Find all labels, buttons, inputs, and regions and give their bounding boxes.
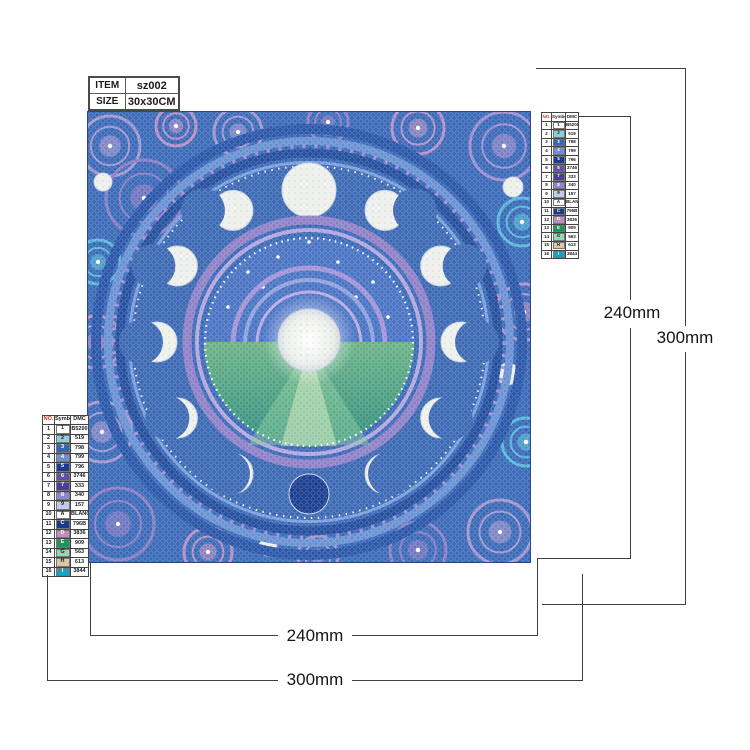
dim-right-inner-tick-top [578,116,631,117]
chart-symbol: 1 [552,121,566,130]
chart-symbol-chip: 5 [553,156,565,164]
chart-symbol-chip: 6 [56,473,70,482]
chart-dmc: 340 [71,491,89,501]
chart-symbol-chip: E [553,225,565,233]
chart-dmc: 3746 [566,164,579,173]
color-chart-left: NO. Symbol DMC 11B5200225193379844799557… [42,415,89,577]
chart-no: 3 [43,444,55,454]
dim-right-inner-line [630,328,631,558]
color-chart-row: 55796 [43,463,89,473]
chart-symbol-chip: 8 [56,492,70,501]
color-chart-row: 12D3836 [43,529,89,539]
chart-dmc: 796 [566,155,579,164]
chart-symbol: 8 [552,181,566,190]
chart-symbol: A [55,510,71,520]
chart-no: 2 [542,130,552,139]
chart-symbol-chip: I [553,251,565,259]
chart-symbol-chip: A [56,511,70,520]
chart-dmc: 796B [566,207,579,216]
chart-dmc: 796B [71,520,89,530]
color-chart-row: 88340 [43,491,89,501]
chart-dmc: 909 [566,224,579,233]
dim-right-outer-tick-top [536,68,686,69]
chart-no: 16 [542,250,552,259]
chart-header-dmc: DMC [566,113,579,122]
dim-right-inner-label: 240mm [602,304,662,322]
chart-symbol-chip: D [56,530,70,539]
chart-symbol: 6 [55,472,71,482]
chart-symbol: 5 [55,463,71,473]
chart-no: 7 [542,173,552,182]
chart-no: 9 [43,501,55,511]
chart-dmc: 613 [566,241,579,250]
chart-symbol: 5 [552,155,566,164]
chart-dmc: BLANC [566,198,579,207]
size-row: SIZE 30x30CM [89,94,179,111]
chart-header-row: NO. Symbol DMC [542,113,579,122]
chart-dmc: 563 [71,548,89,558]
chart-symbol: H [552,241,566,250]
chart-dmc: BLANC [71,510,89,520]
chart-no: 12 [43,529,55,539]
dim-right-inner-line [630,116,631,300]
chart-symbol: 9 [552,190,566,199]
chart-symbol: 9 [55,501,71,511]
chart-symbol-chip: 5 [56,463,70,472]
chart-symbol: 2 [552,130,566,139]
chart-no: 6 [542,164,552,173]
chart-no: 11 [43,520,55,530]
chart-no: 10 [542,198,552,207]
chart-dmc: 799 [566,147,579,156]
chart-no: 9 [542,190,552,199]
chart-dmc: 3836 [566,216,579,225]
color-chart-row: 99157 [542,190,579,199]
chart-dmc: 3844 [71,567,89,577]
color-chart-row: 10ABLANC [542,198,579,207]
chart-no: 13 [43,539,55,549]
chart-symbol-chip: 3 [56,444,70,453]
chart-symbol-chip: 4 [56,454,70,463]
chart-dmc: 519 [566,130,579,139]
chart-dmc: 3836 [71,529,89,539]
chart-header-row: NO. Symbol DMC [43,416,89,425]
color-chart-row: 22519 [542,130,579,139]
chart-symbol: A [552,198,566,207]
chart-symbol-chip: 1 [56,425,70,434]
chart-no: 5 [43,463,55,473]
color-chart-row: 14G563 [542,233,579,242]
color-chart-row: 11B5200 [542,121,579,130]
chart-symbol: G [55,548,71,558]
chart-no: 15 [43,558,55,568]
dim-right-outer-label: 300mm [655,329,715,347]
chart-symbol-chip: C [553,208,565,216]
chart-header-no: NO. [43,416,55,425]
chart-dmc: 157 [71,501,89,511]
chart-no: 14 [43,548,55,558]
chart-no: 15 [542,241,552,250]
dim-bottom-outer-tick-left [47,575,48,681]
chart-no: 5 [542,155,552,164]
chart-symbol-chip: 2 [553,130,565,138]
dim-bottom-outer-line [47,680,278,681]
item-row: ITEM sz002 [89,77,179,94]
chart-dmc: 157 [566,190,579,199]
dim-bottom-inner-line [352,635,537,636]
chart-symbol: C [55,520,71,530]
color-chart-row: 14G563 [43,548,89,558]
size-label: SIZE [89,94,125,111]
chart-header-dmc: DMC [71,416,89,425]
color-chart-right: NO. Symbol DMC 11B5200225193379844799557… [541,112,579,259]
dim-bottom-outer-label: 300mm [285,671,345,689]
chart-symbol-chip: G [553,233,565,241]
chart-symbol: 7 [55,482,71,492]
chart-no: 11 [542,207,552,216]
color-chart-row: 33798 [43,444,89,454]
chart-symbol: D [55,529,71,539]
chart-symbol-chip: D [553,216,565,224]
chart-no: 4 [542,147,552,156]
chart-symbol: 4 [552,147,566,156]
chart-no: 1 [542,121,552,130]
color-chart-row: 11B5200 [43,425,89,435]
chart-symbol-chip: I [56,568,70,577]
chart-dmc: 799 [71,453,89,463]
chart-no: 10 [43,510,55,520]
color-chart-row: 15H613 [542,241,579,250]
chart-symbol-chip: 6 [553,165,565,173]
dim-bottom-outer-line [352,680,582,681]
chart-symbol: 4 [55,453,71,463]
chart-symbol: I [552,250,566,259]
dim-bottom-inner-line [90,635,278,636]
chart-symbol: 7 [552,173,566,182]
chart-no: 13 [542,224,552,233]
chart-symbol: 6 [552,164,566,173]
chart-dmc: 333 [71,482,89,492]
chart-dmc: 563 [566,233,579,242]
chart-dmc: B5200 [71,425,89,435]
chart-symbol: D [552,216,566,225]
chart-symbol: E [552,224,566,233]
item-value: sz002 [125,77,179,94]
product-image: ITEM sz002 SIZE 30x30CM [0,0,750,750]
chart-no: 16 [43,567,55,577]
color-chart-row: 33798 [542,138,579,147]
size-value: 30x30CM [125,94,179,111]
chart-symbol-chip: 7 [553,173,565,181]
color-chart-row: 663746 [542,164,579,173]
color-chart-row: 77333 [542,173,579,182]
chart-symbol-chip: E [56,539,70,548]
chart-dmc: 333 [566,173,579,182]
dim-right-outer-line [685,352,686,604]
chart-no: 8 [542,181,552,190]
chart-symbol-chip: H [56,558,70,567]
chart-header-symbol: Symbol [55,416,71,425]
chart-symbol-chip: A [553,199,565,207]
chart-symbol-chip: 7 [56,482,70,491]
chart-symbol: E [55,539,71,549]
chart-no: 14 [542,233,552,242]
chart-dmc: 796 [71,463,89,473]
chart-symbol: 3 [55,444,71,454]
dim-bottom-outer-tick-right [582,574,583,681]
color-chart-row: 16I3844 [542,250,579,259]
chart-symbol-chip: G [56,549,70,558]
color-chart-row: 13E909 [43,539,89,549]
color-chart-row: 13E909 [542,224,579,233]
chart-no: 12 [542,216,552,225]
chart-symbol: 3 [552,138,566,147]
chart-symbol: 2 [55,434,71,444]
chart-dmc: 3746 [71,472,89,482]
chart-header-symbol: Symbol [552,113,566,122]
chart-symbol: 1 [55,425,71,435]
dim-bottom-inner-tick-left [90,562,91,636]
chart-symbol: C [552,207,566,216]
color-chart-row: 55796 [542,155,579,164]
chart-symbol: 8 [55,491,71,501]
chart-no: 6 [43,472,55,482]
chart-symbol-chip: 4 [553,147,565,155]
color-chart-row: 15H613 [43,558,89,568]
chart-symbol-chip: 2 [56,435,70,444]
dim-bottom-inner-tick-right [537,558,538,636]
chart-symbol-chip: C [56,520,70,529]
chart-dmc: 519 [71,434,89,444]
chart-symbol-chip: 1 [553,122,565,130]
chart-symbol-chip: 9 [56,501,70,510]
chart-symbol-chip: 3 [553,139,565,147]
color-chart-row: 88340 [542,181,579,190]
chart-symbol: I [55,567,71,577]
item-label: ITEM [89,77,125,94]
color-chart-row: 663746 [43,472,89,482]
diamond-painting-artwork [88,112,530,562]
chart-symbol-chip: 8 [553,182,565,190]
chart-dmc: 909 [71,539,89,549]
item-size-table: ITEM sz002 SIZE 30x30CM [88,76,180,111]
chart-no: 1 [43,425,55,435]
chart-dmc: 340 [566,181,579,190]
color-chart-row: 22519 [43,434,89,444]
dim-right-outer-tick-bottom [542,604,686,605]
dim-right-outer-line [685,68,686,326]
chart-no: 7 [43,482,55,492]
color-chart-row: 99157 [43,501,89,511]
color-chart-row: 11C796B [542,207,579,216]
color-chart-row: 12D3836 [542,216,579,225]
color-chart-row: 11C796B [43,520,89,530]
chart-dmc: 798 [71,444,89,454]
chart-symbol-chip: H [553,242,565,250]
chart-header-no: NO. [542,113,552,122]
diamond-dot-texture [88,112,530,562]
dim-bottom-inner-label: 240mm [285,627,345,645]
chart-no: 3 [542,138,552,147]
chart-dmc: 798 [566,138,579,147]
dim-right-inner-tick-bottom [538,558,631,559]
chart-symbol: G [552,233,566,242]
color-chart-row: 10ABLANC [43,510,89,520]
chart-symbol: H [55,558,71,568]
color-chart-row: 77333 [43,482,89,492]
chart-dmc: 3844 [566,250,579,259]
chart-no: 8 [43,491,55,501]
chart-dmc: B5200 [566,121,579,130]
chart-dmc: 613 [71,558,89,568]
chart-symbol-chip: 9 [553,190,565,198]
color-chart-row: 44799 [43,453,89,463]
chart-no: 4 [43,453,55,463]
color-chart-row: 16I3844 [43,567,89,577]
chart-no: 2 [43,434,55,444]
color-chart-row: 44799 [542,147,579,156]
